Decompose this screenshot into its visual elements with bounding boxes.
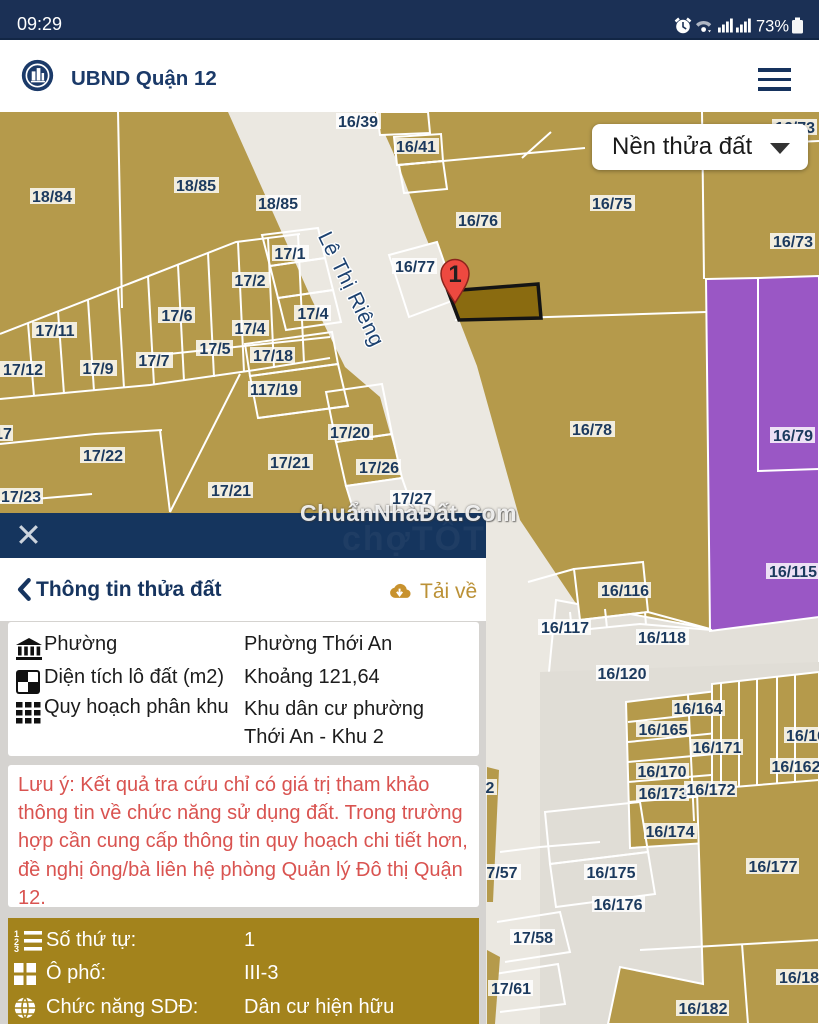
- svg-text:17/58: 17/58: [513, 930, 553, 947]
- svg-text:117/19: 117/19: [250, 382, 298, 399]
- svg-text:16/16: 16/16: [786, 728, 819, 745]
- svg-text:17/7: 17/7: [138, 353, 169, 370]
- svg-text:17/21: 17/21: [270, 455, 310, 472]
- svg-text:16/78: 16/78: [572, 422, 612, 439]
- svg-text:16/73: 16/73: [773, 234, 813, 251]
- svg-text:18/84: 18/84: [32, 189, 72, 206]
- svg-text:16/75: 16/75: [592, 196, 632, 213]
- svg-text:16/118: 16/118: [638, 630, 686, 647]
- svg-text:17/4: 17/4: [297, 306, 328, 323]
- svg-text:16/76: 16/76: [458, 213, 498, 230]
- svg-text:17/11: 17/11: [35, 323, 74, 340]
- svg-text:17/26: 17/26: [359, 460, 399, 477]
- svg-text:16/116: 16/116: [601, 583, 649, 600]
- svg-text:18/85: 18/85: [176, 178, 216, 195]
- svg-text:17/12: 17/12: [3, 362, 43, 379]
- svg-text:17/21: 17/21: [211, 483, 251, 500]
- svg-text:17/61: 17/61: [491, 981, 531, 998]
- svg-text:16/170: 16/170: [638, 764, 687, 781]
- svg-text:17/18: 17/18: [253, 348, 293, 365]
- svg-text:16/39: 16/39: [338, 114, 378, 131]
- svg-text:17: 17: [0, 426, 12, 443]
- svg-text:17/4: 17/4: [234, 321, 265, 338]
- svg-text:17/22: 17/22: [83, 448, 123, 465]
- svg-text:16/117: 16/117: [541, 620, 589, 637]
- svg-text:16/175: 16/175: [587, 865, 636, 882]
- svg-text:16/171: 16/171: [693, 740, 742, 757]
- svg-text:16/120: 16/120: [598, 666, 647, 683]
- svg-text:17/20: 17/20: [330, 425, 370, 442]
- svg-text:18/85: 18/85: [258, 196, 298, 213]
- svg-text:16/79: 16/79: [773, 428, 813, 445]
- svg-text:16/182: 16/182: [679, 1001, 728, 1018]
- svg-text:17/9: 17/9: [82, 361, 113, 378]
- svg-text:16/176: 16/176: [594, 897, 643, 914]
- svg-text:16/173: 16/173: [639, 786, 688, 803]
- svg-text:16/177: 16/177: [749, 859, 798, 876]
- svg-text:16/174: 16/174: [646, 824, 695, 841]
- svg-text:73%: 73%: [756, 18, 789, 36]
- svg-text:1: 1: [448, 261, 461, 288]
- svg-text:16/162: 16/162: [772, 759, 819, 776]
- svg-text:16/164: 16/164: [674, 701, 723, 718]
- svg-text:16/172: 16/172: [687, 782, 736, 799]
- svg-text:3: 3: [14, 944, 19, 952]
- svg-text:17/23: 17/23: [1, 489, 41, 506]
- svg-text:17/1: 17/1: [274, 246, 305, 263]
- svg-text:17/5: 17/5: [199, 341, 230, 358]
- svg-text:16/41: 16/41: [396, 139, 436, 156]
- svg-text:16/115: 16/115: [769, 564, 817, 581]
- svg-text:17/6: 17/6: [161, 308, 192, 325]
- svg-text:2: 2: [486, 780, 495, 797]
- svg-text:7/57: 7/57: [486, 865, 517, 882]
- svg-text:16/77: 16/77: [395, 259, 435, 276]
- svg-text:16/165: 16/165: [639, 722, 688, 739]
- svg-text:16/18: 16/18: [779, 970, 819, 987]
- svg-text:17/2: 17/2: [234, 273, 265, 290]
